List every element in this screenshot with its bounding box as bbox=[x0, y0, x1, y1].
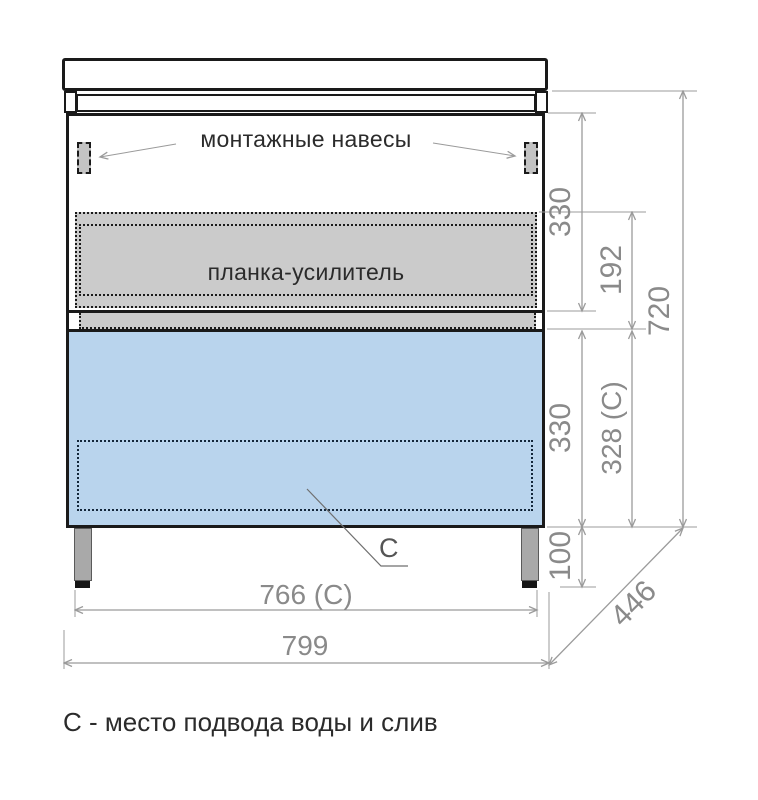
drain-zone-marker: С bbox=[379, 533, 399, 564]
dim-label-766: 766 (С) bbox=[216, 580, 396, 610]
reinforcement-bar-label: планка-усилитель bbox=[75, 259, 537, 286]
vanity-cabinet-drawing: монтажные навесы планка-усилитель С 330 … bbox=[0, 0, 758, 800]
dim-label-192: 192 bbox=[595, 230, 629, 310]
leader-left-hanger bbox=[100, 144, 176, 157]
mounting-hangers-label: монтажные навесы bbox=[166, 126, 446, 153]
dim-label-328: 328 (С) bbox=[595, 363, 629, 493]
drawing-caption: С - место подвода воды и слив bbox=[63, 707, 438, 738]
dim-label-lower-330: 330 bbox=[544, 388, 578, 468]
dim-label-720: 720 bbox=[643, 266, 677, 356]
dimension-lines-layer bbox=[0, 0, 758, 800]
dim-label-799: 799 bbox=[245, 631, 365, 661]
dim-label-100: 100 bbox=[544, 516, 578, 596]
dim-label-upper-330: 330 bbox=[544, 172, 578, 252]
